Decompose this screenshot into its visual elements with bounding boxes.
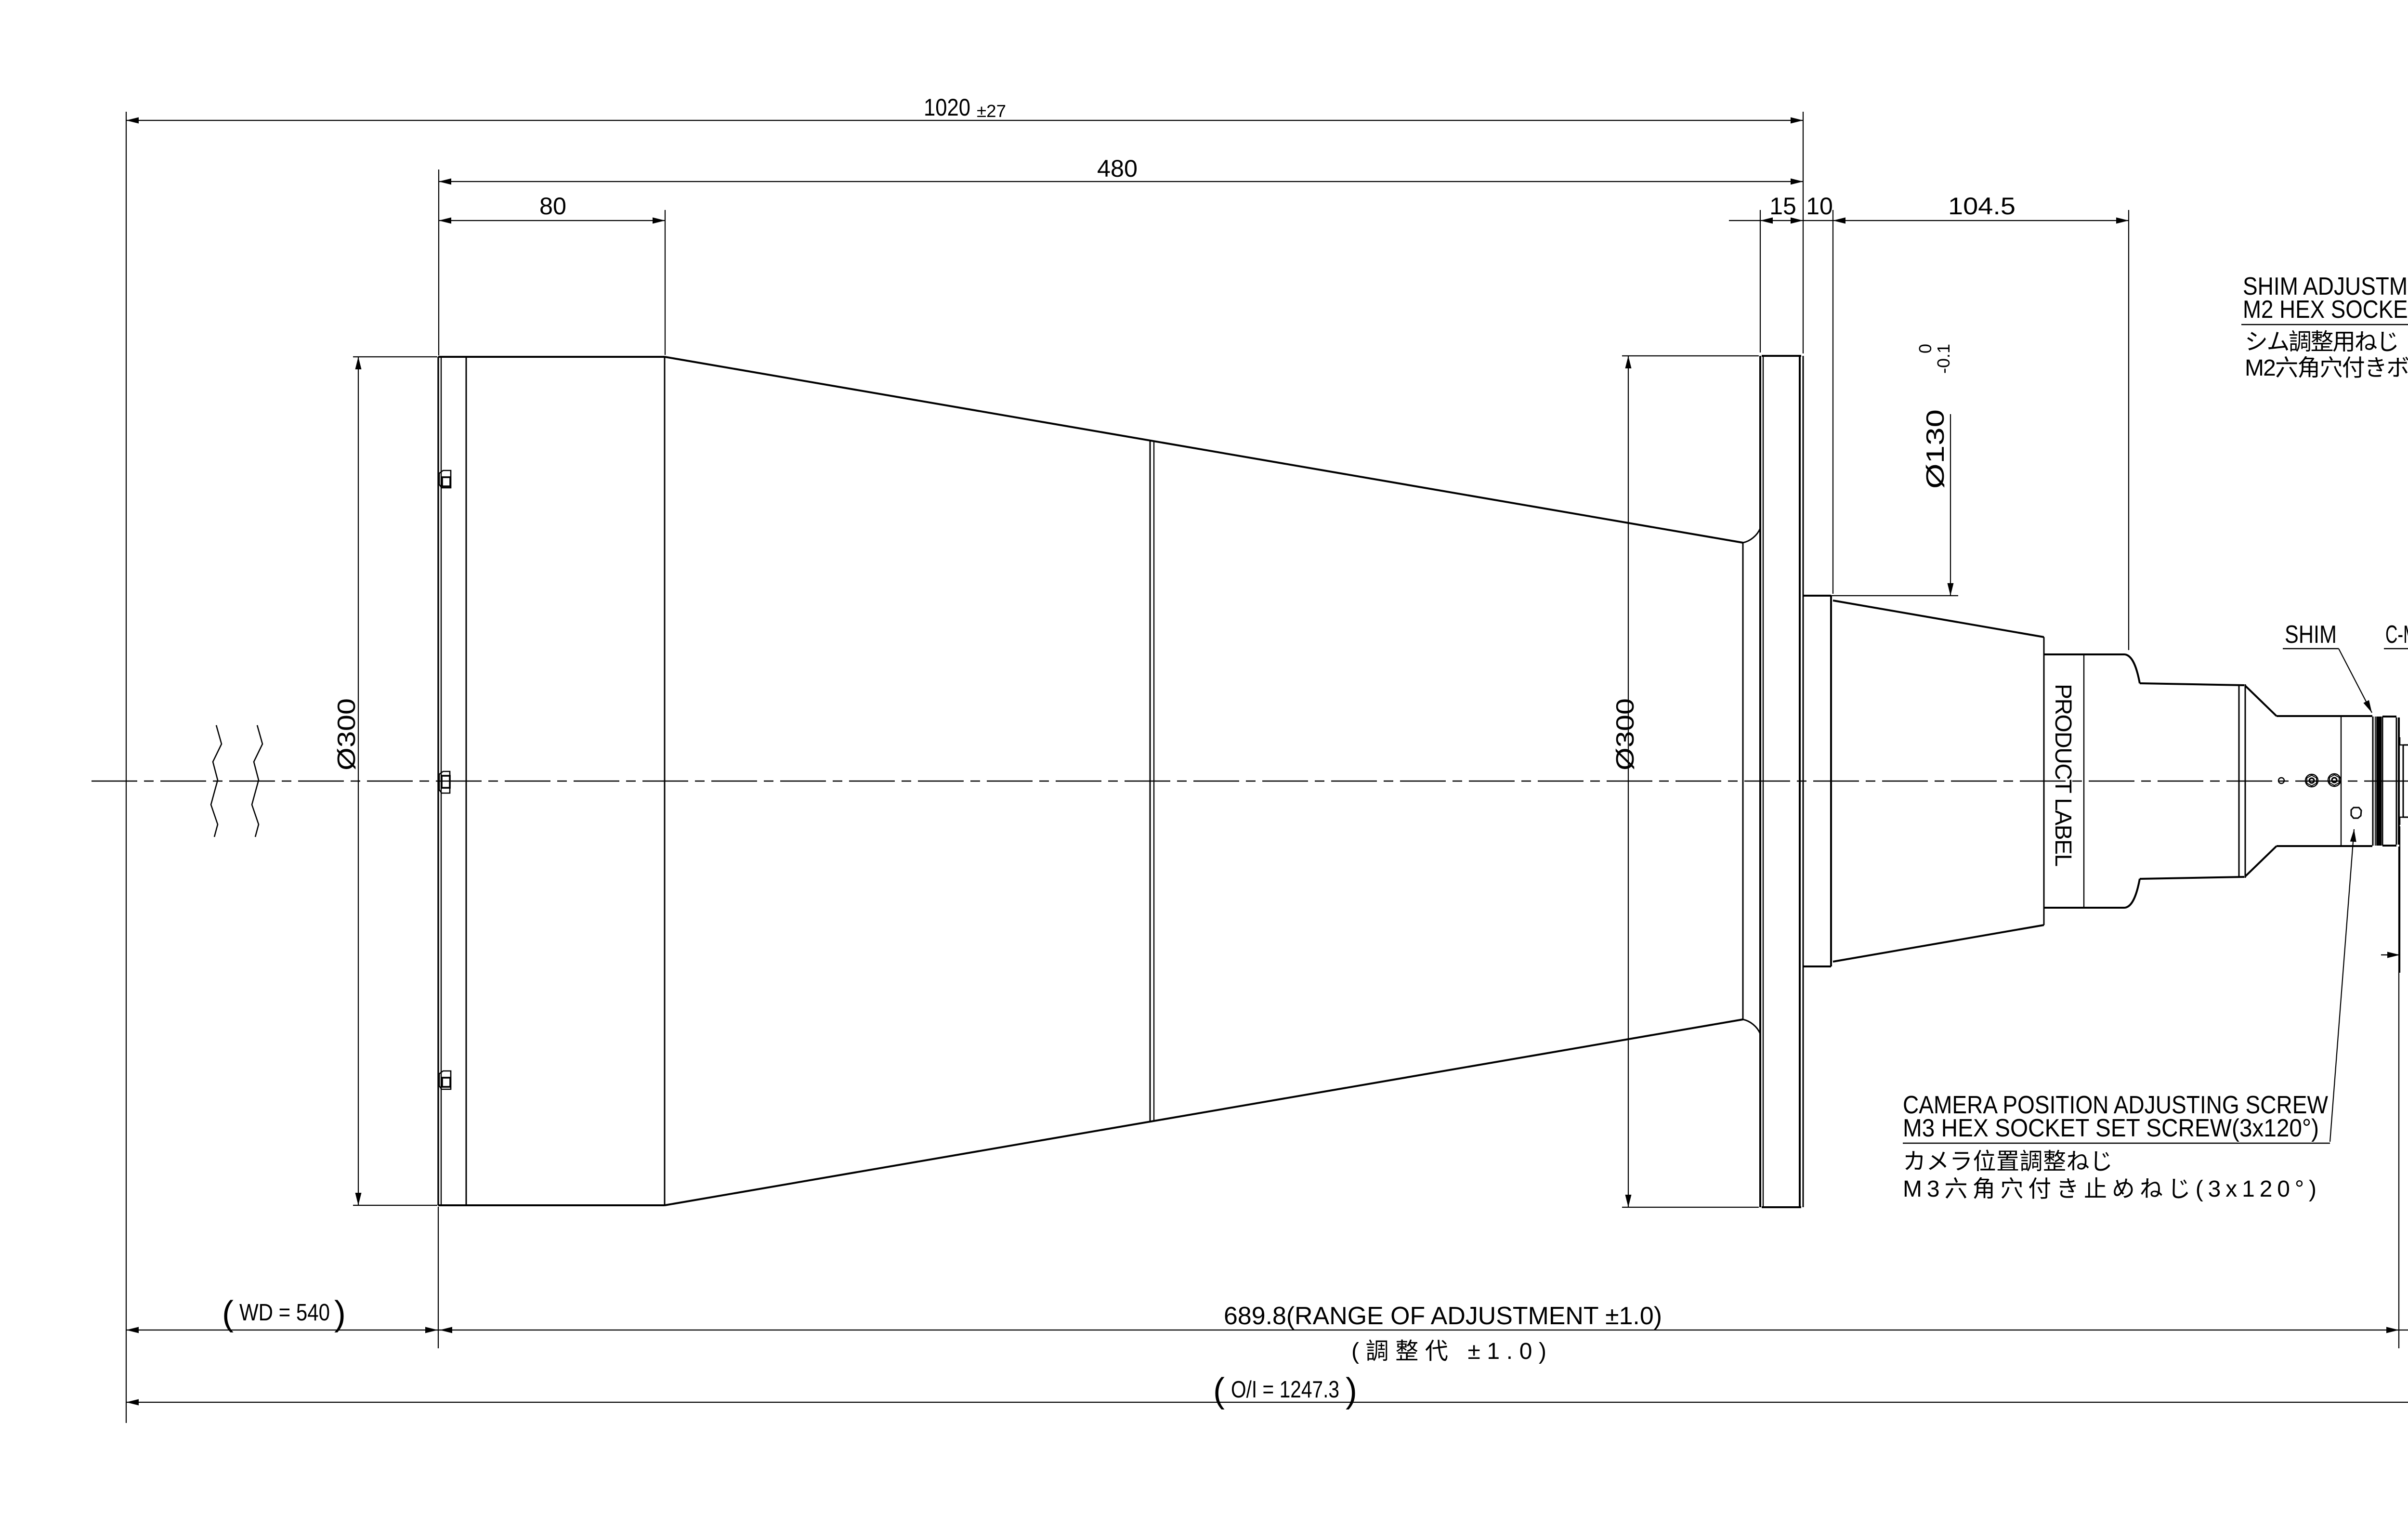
- svg-text:Ø300: Ø300: [1611, 698, 1639, 770]
- svg-text:シム調整用ねじ: シム調整用ねじ: [2245, 329, 2399, 355]
- svg-text:O/I = 1247.3: O/I = 1247.3: [1231, 1377, 1339, 1403]
- svg-text:): ): [334, 1294, 346, 1333]
- svg-text:104.5: 104.5: [1948, 193, 2015, 220]
- svg-text:Ø300: Ø300: [333, 698, 361, 770]
- svg-text:M2 HEX SOCKET HEAD CAP(3x120˚): M2 HEX SOCKET HEAD CAP(3x120˚): [2243, 296, 2408, 324]
- svg-text:カメラ位置調整ねじ: カメラ位置調整ねじ: [1903, 1149, 2113, 1174]
- svg-text:1020: 1020: [924, 94, 970, 121]
- svg-text:M2六角穴付きボルト(3x120˚): M2六角穴付きボルト(3x120˚): [2245, 355, 2408, 381]
- svg-text:C-MOUNT: C-MOUNT: [2385, 621, 2408, 649]
- svg-text:(: (: [1213, 1371, 1225, 1410]
- svg-text:-0.1: -0.1: [1934, 344, 1953, 374]
- svg-text:(: (: [222, 1294, 234, 1333]
- svg-text:WD = 540: WD = 540: [239, 1300, 330, 1326]
- svg-text:): ): [1346, 1371, 1357, 1410]
- svg-text:Ø130: Ø130: [1922, 409, 1950, 489]
- svg-text:689.8(RANGE OF ADJUSTMENT ±1.0: 689.8(RANGE OF ADJUSTMENT ±1.0): [1224, 1302, 1662, 1330]
- svg-text:10: 10: [1806, 193, 1833, 220]
- svg-text:15: 15: [1769, 193, 1796, 220]
- svg-text:480: 480: [1097, 155, 1138, 182]
- svg-text:80: 80: [539, 193, 566, 220]
- svg-text:PRODUCT LABEL: PRODUCT LABEL: [2050, 684, 2076, 867]
- svg-text:SHIM: SHIM: [2285, 621, 2337, 649]
- svg-text:±27: ±27: [977, 101, 1006, 121]
- svg-text:0: 0: [1915, 344, 1935, 353]
- svg-text:M3 HEX SOCKET SET SCREW(3x120°: M3 HEX SOCKET SET SCREW(3x120°): [1903, 1114, 2319, 1142]
